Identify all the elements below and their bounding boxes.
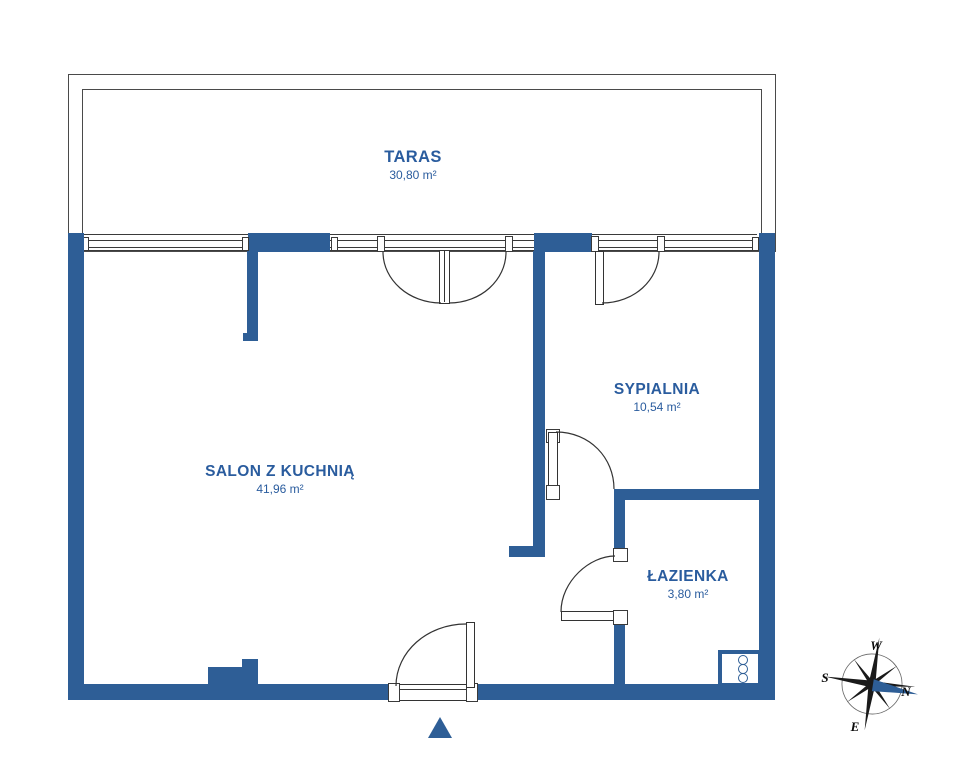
balcony-double-door-leaves bbox=[439, 250, 450, 304]
room-name: SALON Z KUCHNIĄ bbox=[205, 463, 355, 481]
bedroom-door-leaf bbox=[548, 432, 558, 492]
right-exterior-wall bbox=[759, 233, 775, 700]
bedroom-door-arc bbox=[556, 432, 614, 489]
bathroom-door-jamb-top bbox=[613, 548, 628, 562]
bathroom-west-wall-upper bbox=[614, 500, 625, 553]
salon-bedroom-divider-foot bbox=[509, 546, 545, 557]
bathroom-shaft-box bbox=[718, 650, 762, 687]
room-area: 10,54 m² bbox=[614, 400, 700, 414]
compass-needle-se bbox=[869, 684, 894, 709]
floor-plan: W S N E TARAS 30,80 m² SALON Z KUCHNIĄ 4… bbox=[0, 0, 956, 768]
room-area: 41,96 m² bbox=[205, 482, 355, 496]
bathroom-door-arc bbox=[561, 556, 615, 612]
kitchen-partition-wall bbox=[247, 251, 258, 335]
door-jamb bbox=[591, 236, 599, 252]
compass-circle bbox=[838, 650, 907, 719]
room-area: 3,80 m² bbox=[647, 587, 729, 601]
compass-needle-right-thin bbox=[871, 680, 916, 693]
balcony-door-arc-left bbox=[383, 252, 441, 303]
compass-needle-left bbox=[824, 673, 873, 688]
room-name: TARAS bbox=[384, 148, 442, 167]
room-label-salon: SALON Z KUCHNIĄ 41,96 m² bbox=[205, 463, 355, 496]
compass-label-north: N bbox=[900, 684, 911, 699]
window-jamb bbox=[752, 237, 759, 251]
room-area: 30,80 m² bbox=[384, 168, 442, 182]
compass-label-west: W bbox=[870, 638, 883, 653]
compass-needle-up bbox=[868, 637, 882, 686]
bedroom-balcony-door-arc bbox=[602, 252, 659, 303]
compass-needle-ne bbox=[872, 662, 897, 687]
window-jamb bbox=[242, 237, 249, 251]
balcony-door-arc-right bbox=[449, 252, 506, 303]
bathroom-door-jamb-hinge bbox=[613, 610, 628, 625]
bedroom-balcony-door-leaf bbox=[595, 251, 604, 305]
compass-label-east: E bbox=[850, 719, 860, 734]
compass-needle-nw bbox=[850, 659, 875, 684]
room-label-sypialnia: SYPIALNIA 10,54 m² bbox=[614, 381, 700, 414]
compass-rose: W S N E bbox=[817, 630, 926, 738]
entrance-threshold bbox=[391, 684, 477, 701]
top-wall-segment-center bbox=[534, 233, 592, 252]
entrance-marker bbox=[428, 717, 452, 738]
room-name: SYPIALNIA bbox=[614, 381, 700, 399]
window-jamb bbox=[331, 237, 338, 251]
bathroom-west-wall-lower bbox=[614, 615, 625, 684]
compass-north-pointer bbox=[872, 679, 919, 698]
door-jamb bbox=[505, 236, 513, 252]
compass-label-south: S bbox=[821, 670, 828, 685]
wall-pilaster-lower bbox=[208, 667, 258, 685]
door-jamb bbox=[377, 236, 385, 252]
kitchen-partition-foot bbox=[243, 333, 258, 341]
room-label-taras: TARAS 30,80 m² bbox=[384, 148, 442, 182]
entrance-jamb-left bbox=[388, 683, 400, 702]
entrance-door-leaf bbox=[466, 622, 475, 688]
compass-needle-sw bbox=[847, 681, 872, 706]
room-name: ŁAZIENKA bbox=[647, 568, 729, 586]
salon-bedroom-divider-wall bbox=[533, 251, 545, 547]
compass-needle-down bbox=[861, 682, 875, 731]
left-exterior-wall bbox=[68, 233, 84, 700]
room-label-lazienka: ŁAZIENKA 3,80 m² bbox=[647, 568, 729, 601]
entrance-threshold-line bbox=[392, 689, 474, 690]
bedroom-door-jamb-hinge bbox=[546, 485, 560, 500]
top-wall-segment-kitchen bbox=[248, 233, 330, 252]
balcony-double-door-center-line bbox=[444, 251, 445, 302]
window-band-top-edge bbox=[84, 234, 757, 235]
bathroom-door-leaf bbox=[561, 611, 619, 621]
door-jamb bbox=[657, 236, 665, 252]
shaft-circle bbox=[738, 673, 748, 683]
bottom-wall-left-segment bbox=[68, 684, 391, 700]
bathroom-north-wall bbox=[614, 489, 759, 500]
entrance-door-arc bbox=[396, 624, 466, 686]
wall-pilaster-upper bbox=[242, 659, 258, 668]
